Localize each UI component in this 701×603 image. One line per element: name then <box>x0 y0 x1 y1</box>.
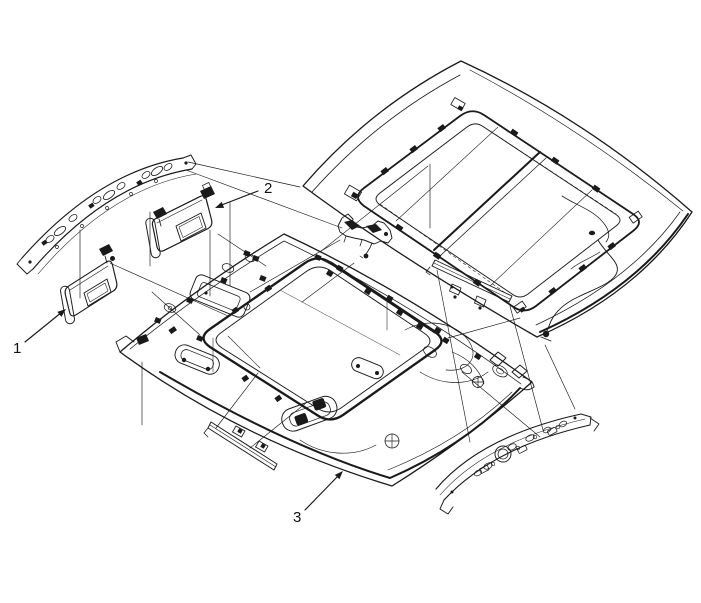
vanity-mirror <box>84 279 111 306</box>
sunroof-frame-drawing <box>344 98 642 314</box>
visor-bracket <box>200 186 215 199</box>
exploded-parts-diagram: 1 2 3 <box>0 0 701 603</box>
callout-1-label: 1 <box>13 340 21 357</box>
visor-pivot-rod <box>145 218 161 259</box>
callout-3: 3 <box>293 471 343 526</box>
callout-1: 1 <box>13 309 66 357</box>
rear-header-trim-drawing <box>436 414 599 514</box>
diagram-canvas: 1 2 3 <box>0 0 701 603</box>
sun-visor-left-drawing <box>60 244 117 324</box>
overhead-console-drawing <box>188 273 252 319</box>
rear-lamp-drawing <box>279 393 340 434</box>
callout-1-leader-line <box>25 312 62 342</box>
sun-visor-right-drawing <box>145 182 215 258</box>
projection-lines <box>80 162 575 448</box>
callout-2-leader-line <box>219 191 258 206</box>
map-lamp-bracket-drawing <box>338 214 392 258</box>
grab-handle-left-drawing <box>172 342 222 377</box>
visor-clip <box>99 244 113 256</box>
callout-3-leader-line <box>305 475 339 510</box>
front-header-trim-drawing <box>17 155 196 274</box>
grab-handle-right-drawing <box>350 356 386 381</box>
callout-2-arrowhead <box>215 202 224 208</box>
callout-3-label: 3 <box>293 509 301 526</box>
callout-2-label: 2 <box>264 180 272 197</box>
headliner-drawing <box>116 234 534 486</box>
sunroof-opening <box>204 259 442 420</box>
visor-clip <box>153 207 167 219</box>
